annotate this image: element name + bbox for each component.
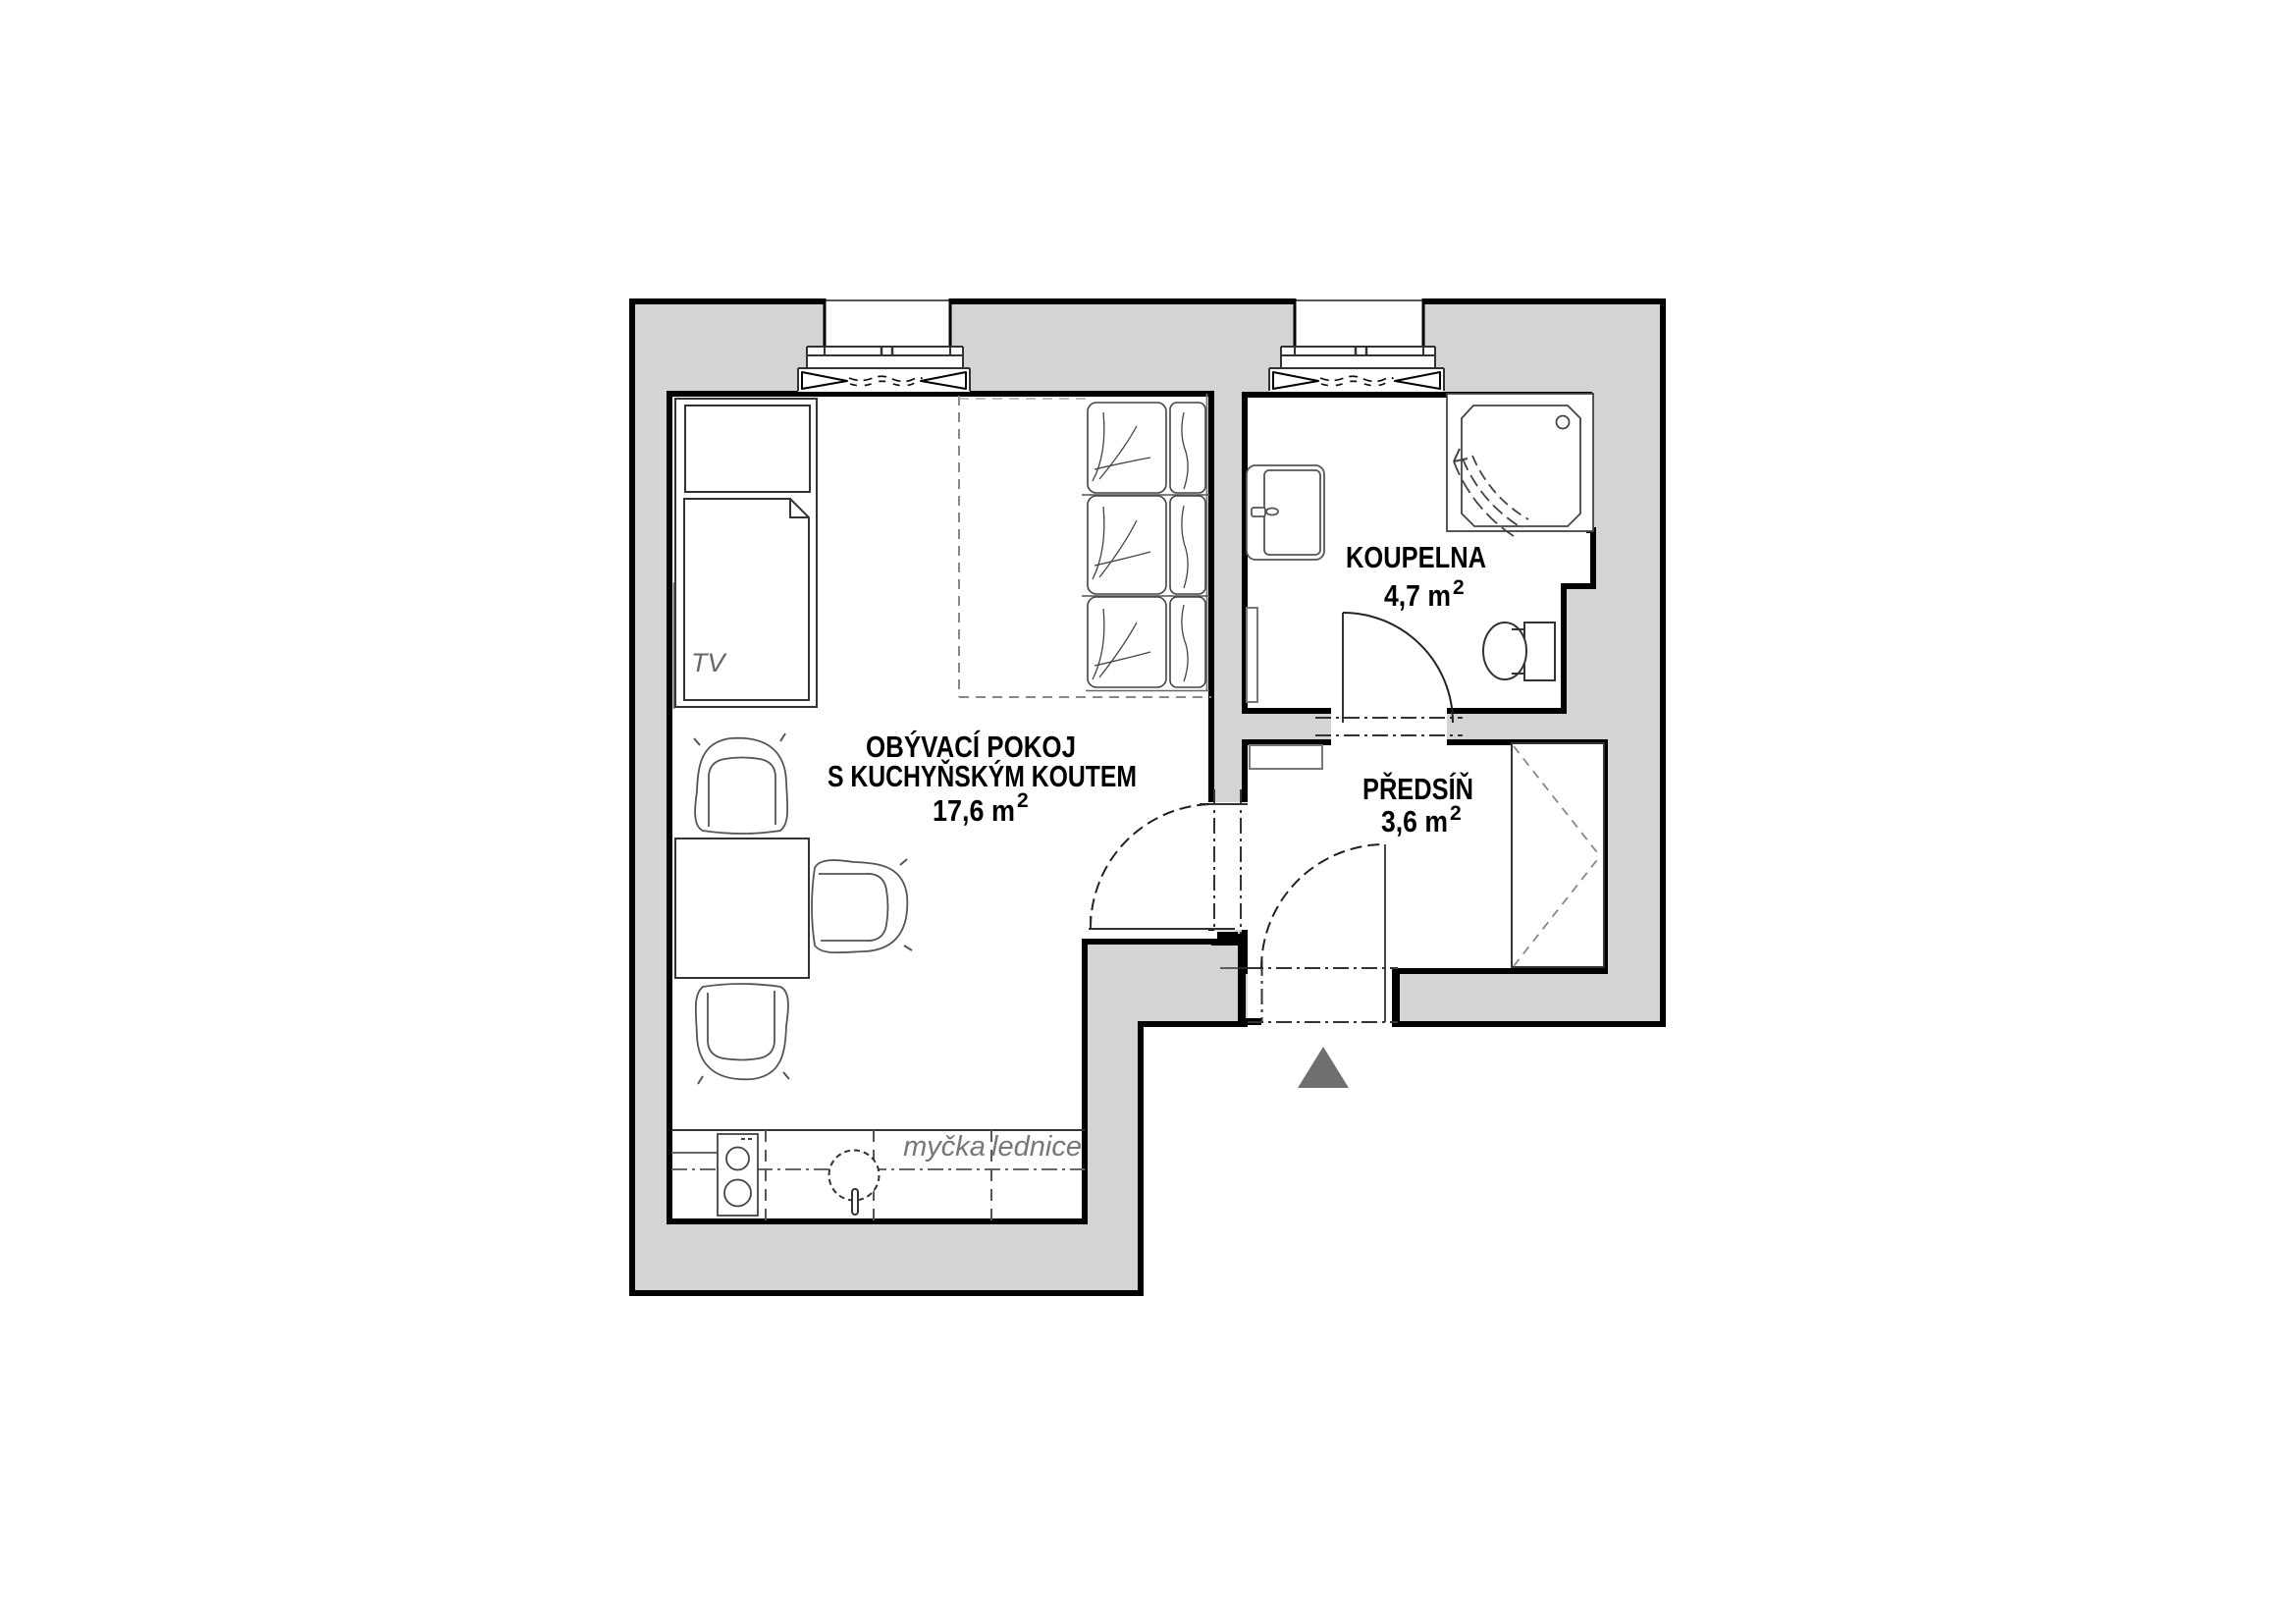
svg-text:2: 2 — [1453, 576, 1465, 599]
svg-text:17,6 m: 17,6 m — [933, 793, 1015, 828]
svg-text:2: 2 — [1017, 789, 1029, 812]
svg-text:PŘEDSÍŇ: PŘEDSÍŇ — [1362, 771, 1473, 806]
svg-text:myčka: myčka — [903, 1131, 986, 1163]
svg-text:TV: TV — [691, 648, 727, 677]
svg-text:4,7 m: 4,7 m — [1384, 578, 1451, 613]
svg-text:3,6 m: 3,6 m — [1381, 804, 1448, 839]
svg-text:2: 2 — [1450, 802, 1462, 825]
svg-text:KOUPELNA: KOUPELNA — [1346, 540, 1486, 574]
svg-text:lednice: lednice — [991, 1131, 1082, 1163]
svg-text:S KUCHYŇSKÝM KOUTEM: S KUCHYŇSKÝM KOUTEM — [828, 758, 1137, 793]
